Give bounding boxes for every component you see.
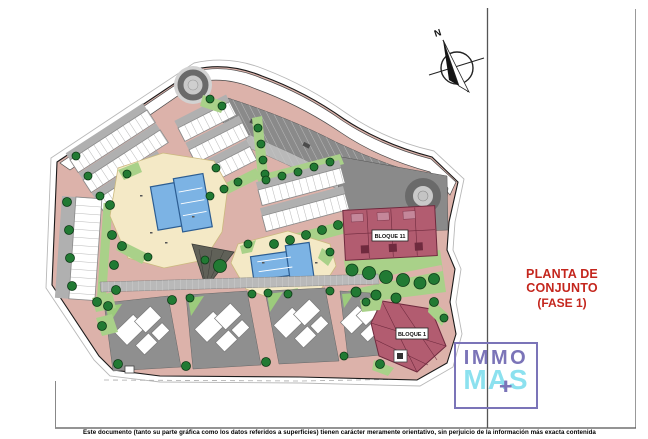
drawing-sheet: BLOQUE 11 bbox=[0, 0, 648, 439]
logo-plus-icon: + bbox=[499, 374, 512, 400]
north-label: N bbox=[433, 27, 443, 40]
site-plan: BLOQUE 11 bbox=[0, 0, 648, 439]
title-block: PLANTA DE CONJUNTO (FASE 1) bbox=[489, 267, 635, 310]
north-arrow: N bbox=[429, 27, 484, 92]
drawing-subtitle: (FASE 1) bbox=[489, 296, 635, 310]
bloque-1-label: BLOQUE 1 bbox=[398, 332, 426, 338]
immomas-logo: IMMO MAS + bbox=[454, 342, 538, 409]
disclaimer-text: Este documento (tanto su parte gráfica c… bbox=[83, 429, 596, 436]
bloque-11-label: BLOQUE 11 bbox=[375, 234, 406, 240]
logo-word-mas: MAS bbox=[456, 365, 536, 394]
bloque-11-building: BLOQUE 11 bbox=[343, 206, 437, 261]
drawing-title: PLANTA DE CONJUNTO bbox=[489, 267, 635, 295]
